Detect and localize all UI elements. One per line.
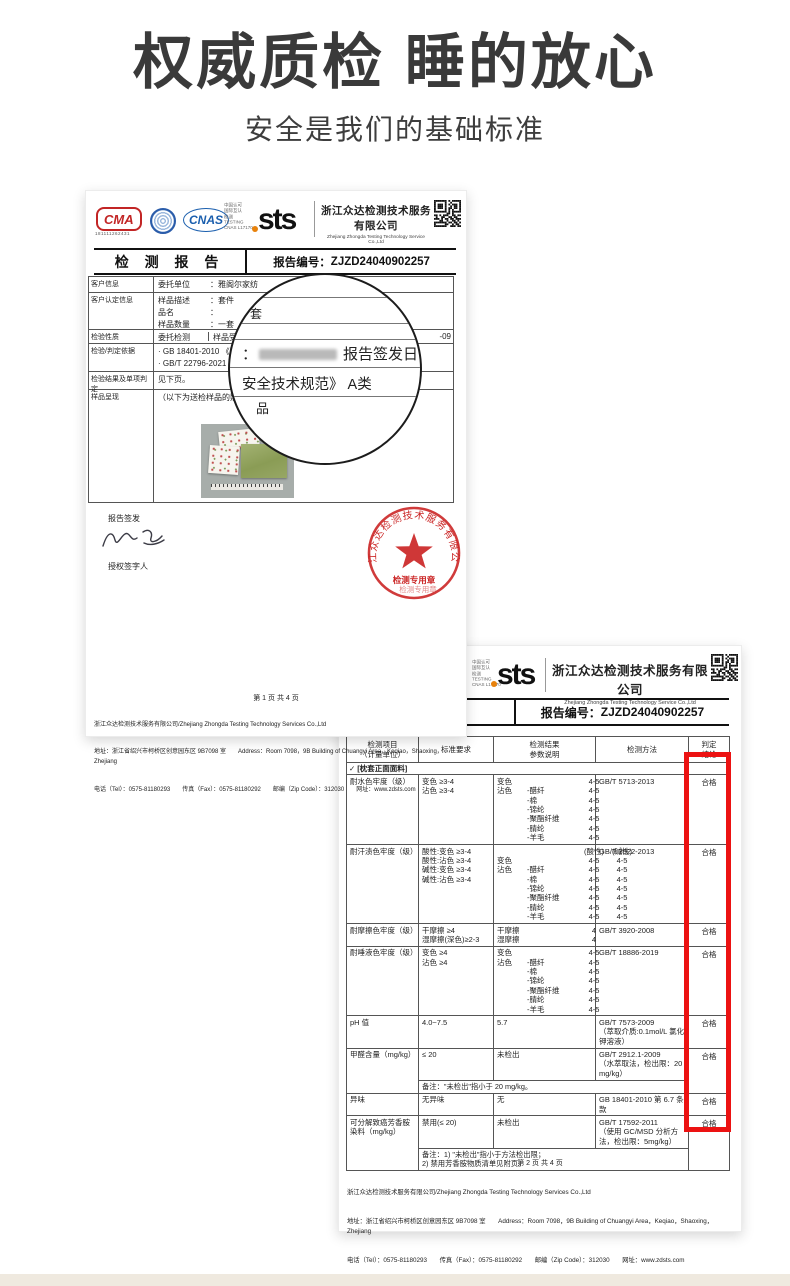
result-line: -锦纶4-54-5 <box>497 884 592 893</box>
result-fiber <box>527 935 579 944</box>
page-number: 第 2 页 共 4 页 <box>339 1158 741 1168</box>
result-line: 干摩擦4 <box>497 926 592 935</box>
blurred-date <box>259 349 337 360</box>
method-line: GB/T 3922-2013 <box>599 847 685 856</box>
result-fiber: -锦纶 <box>527 884 579 893</box>
report-page-1: CMA 181111262431 CNAS 中国认可 国际互认 检测 TESTI… <box>85 190 467 737</box>
result-value: 4-5 <box>579 967 609 976</box>
requirement-line: 碱性:沾色 ≥3-4 <box>422 875 490 884</box>
result-fiber: -羊毛 <box>527 912 579 921</box>
result-value: 4-5 <box>579 814 609 823</box>
result-line: 沾色-醋纤4-5 <box>497 786 592 795</box>
requirement-line: ≤ 20 <box>422 1050 490 1059</box>
item-cell: 耐摩擦色牢度（级） <box>347 924 419 947</box>
report-number-cell: 报告编号：ZJZD24040902257 <box>514 700 729 724</box>
result-line: -聚酯纤维4-5 <box>497 986 592 995</box>
requirement-cell: ≤ 20 <box>419 1048 494 1080</box>
requirement-line: 无异味 <box>422 1095 490 1104</box>
result-value: 4-5 <box>579 824 609 833</box>
method-line: GB/T 2912.1-2009 <box>599 1050 685 1059</box>
result-value: 4-5 <box>579 995 609 1004</box>
date-tail: -09 <box>439 332 451 341</box>
qr-code <box>711 654 738 681</box>
result-fiber: -腈纶 <box>527 995 579 1004</box>
info-row-label: 检验性质 <box>89 330 154 343</box>
report-title-bar: 检 测 报 告 报告编号：ZJZD24040902257 <box>94 248 456 275</box>
requirement-line: 变色 ≥4 <box>422 948 490 957</box>
result-value: 4-5 <box>579 893 609 902</box>
result-value: 4-5 <box>579 875 609 884</box>
company-name-cn: 浙江众达检测技术服务有限公司 <box>320 203 432 233</box>
result-value: 4-5 <box>579 856 609 865</box>
result-fiber: -棉 <box>527 967 579 976</box>
method-cell: GB 18401-2010 第 6.7 条款 <box>596 1093 689 1116</box>
company-name-block: 浙江众达检测技术服务有限公司 Zhejiang Zhongda Testing … <box>320 203 432 245</box>
result-value-2: 4-5 <box>609 893 635 902</box>
svg-text:检测专用章: 检测专用章 <box>399 584 437 594</box>
method-cell: GB/T 2912.1-2009（水萃取法，检出限：20mg/kg） <box>596 1048 689 1080</box>
result-fiber: -聚酯纤维 <box>527 986 579 995</box>
result-label: 变色 <box>497 856 527 865</box>
result-cell: 未检出 <box>494 1048 596 1080</box>
result-line: 湿摩擦4 <box>497 935 592 944</box>
method-line: GB 18401-2010 第 6.7 条款 <box>599 1095 685 1114</box>
requirement-line: 湿摩擦(深色)≥2-3 <box>422 935 490 944</box>
test-row: 可分解致癌芳香胺染料（mg/kg）禁用(≤ 20)未检出GB/T 17592-2… <box>347 1116 730 1148</box>
info-row-label: 检验/判定依据 <box>89 344 154 371</box>
requirement-cell: 无异味 <box>419 1093 494 1116</box>
page-title: 权威质检 睡的放心 <box>0 14 790 101</box>
result-fiber: -羊毛 <box>527 1005 579 1014</box>
qr-code <box>434 200 461 227</box>
result-label: 沾色 <box>497 865 527 874</box>
header-divider <box>545 658 546 692</box>
result-fiber: -醋纤 <box>527 786 579 795</box>
result-line: -腈纶4-5 <box>497 995 592 1004</box>
test-row: 耐汗渍色牢度（级）酸性:变色 ≥3-4酸性:沾色 ≥3-4碱性:变色 ≥3-4碱… <box>347 845 730 924</box>
sts-dot-icon <box>252 226 258 232</box>
result-label: 沾色 <box>497 786 527 795</box>
result-cell: 变色4-5沾色-醋纤4-5-棉4-5-锦纶4-5-聚酯纤维4-5-腈纶4-5-羊… <box>494 946 596 1016</box>
requirement-line: 沾色 ≥4 <box>422 958 490 967</box>
svg-text:检测专用章: 检测专用章 <box>393 575 436 585</box>
result-line: -羊毛4-54-5 <box>497 912 592 921</box>
column-header: 检测方法 <box>596 737 689 763</box>
requirement-line: 酸性:变色 ≥3-4 <box>422 847 490 856</box>
result-label: 变色 <box>497 948 527 957</box>
result-fiber <box>527 856 579 865</box>
info-value: ： <box>210 307 218 319</box>
table-rule <box>230 323 420 324</box>
test-row: 异味无异味无GB 18401-2010 第 6.7 条款合格 <box>347 1093 730 1116</box>
doc-title-cell: 检 测 报 告 <box>94 250 245 273</box>
requirement-cell: 禁用(≤ 20) <box>419 1116 494 1148</box>
result-value: 4-5 <box>579 1005 609 1014</box>
result-label <box>497 814 527 823</box>
report-footer: 浙江众达检测技术服务有限公司/Zhejiang Zhongda Testing … <box>94 702 458 814</box>
result-fiber: -醋纤 <box>527 865 579 874</box>
verdict-highlight-box <box>684 752 731 1132</box>
result-cell: 未检出 <box>494 1116 596 1148</box>
cma-logo: CMA <box>96 207 142 231</box>
result-line: -锦纶4-5 <box>497 976 592 985</box>
item-cell: 耐汗渍色牢度（级） <box>347 845 419 924</box>
requirement-cell: 变色 ≥4沾色 ≥4 <box>419 946 494 1016</box>
result-value: 4 <box>579 935 609 944</box>
info-row-label: 客户信息 <box>89 277 154 292</box>
result-value-2: 4-5 <box>609 903 635 912</box>
cma-number: 181111262431 <box>95 231 130 236</box>
result-value: 4-5 <box>579 958 609 967</box>
report-no-label: 报告编号： <box>541 704 601 721</box>
magnifier-circle: 件 套 ：报告签发日 安全技术规范》 A类 品 <box>228 273 422 465</box>
result-value: 4-5 <box>579 805 609 814</box>
result-cell: 变色4-5沾色-醋纤4-5-棉4-5-锦纶4-5-聚酯纤维4-5-腈纶4-5-羊… <box>494 775 596 845</box>
result-fiber <box>527 948 579 957</box>
sts-logo: sts <box>258 205 295 235</box>
table-rule <box>230 396 420 397</box>
result-fiber: -醋纤 <box>527 958 579 967</box>
table-rule <box>230 339 420 340</box>
result-line: 变色4-54-5 <box>497 856 592 865</box>
result-value: 4-5 <box>579 884 609 893</box>
report-no-label: 报告编号： <box>273 254 331 270</box>
info-key: 样品描述 <box>158 295 210 307</box>
note-cell: 备注："未检出"指小于 20 mg/kg。 <box>419 1080 689 1093</box>
table-rule <box>230 367 420 368</box>
result-fiber: -锦纶 <box>527 976 579 985</box>
result-label <box>497 912 527 921</box>
magnified-char: 件 <box>250 281 262 298</box>
method-cell: GB/T 18886-2019 <box>596 946 689 1016</box>
result-value-2: 4-5 <box>609 912 635 921</box>
result-value: 4-5 <box>579 976 609 985</box>
requirement-line: 4.0~7.5 <box>422 1018 490 1027</box>
result-line: -羊毛4-5 <box>497 1005 592 1014</box>
item-cell: 甲醛含量（mg/kg） <box>347 1048 419 1093</box>
method-line: （萃取介质:0.1mol/L 氯化钾溶液） <box>599 1027 685 1046</box>
sts-dot-icon <box>491 681 497 687</box>
result-label <box>497 995 527 1004</box>
result-line: -腈纶4-54-5 <box>497 903 592 912</box>
page-subtitle: 安全是我们的基础标准 <box>0 108 790 148</box>
result-label <box>497 967 527 976</box>
result-fiber: -聚酯纤维 <box>527 814 579 823</box>
result-line: 未检出 <box>497 1118 592 1127</box>
fabric-swatch <box>208 445 240 475</box>
sts-logo: sts <box>497 660 534 690</box>
result-fiber <box>527 926 579 935</box>
signer-label: 授权签字人 <box>108 561 148 572</box>
result-value-2: 4-5 <box>609 875 635 884</box>
method-cell: GB/T 17592-2011（使用 GC/MSD 分析方法，检出限：5mg/k… <box>596 1116 689 1148</box>
result-label: 沾色 <box>497 958 527 967</box>
header-divider <box>314 201 315 237</box>
cell: 委托检测 <box>158 332 208 341</box>
method-cell: GB/T 3920-2008 <box>596 924 689 947</box>
result-line: -腈纶4-5 <box>497 824 592 833</box>
result-value: 4-5 <box>579 903 609 912</box>
result-value: 4-5 <box>579 986 609 995</box>
method-line: GB/T 7573-2009 <box>599 1018 685 1027</box>
requirement-line: 酸性:沾色 ≥3-4 <box>422 856 490 865</box>
result-line: -聚酯纤维4-5 <box>497 814 592 823</box>
result-value: 4-5 <box>579 833 609 842</box>
method-line: （使用 GC/MSD 分析方法，检出限：5mg/kg） <box>599 1127 685 1146</box>
inspection-stamp: 浙江众达检测技术服务有限公司 检测专用章 检测专用章 <box>364 503 464 603</box>
requirement-line: 干摩擦 ≥4 <box>422 926 490 935</box>
result-value: 4-5 <box>579 786 609 795</box>
result-label <box>497 796 527 805</box>
info-row-label: 检验结果及单项判定 <box>89 372 154 389</box>
result-label <box>497 986 527 995</box>
result-fiber: -聚酯纤维 <box>527 893 579 902</box>
result-label: 变色 <box>497 777 527 786</box>
test-row: pH 值4.0~7.55.7GB/T 7573-2009（萃取介质:0.1mol… <box>347 1016 730 1048</box>
result-cell: (酸性)(碱性)变色4-54-5沾色-醋纤4-54-5-棉4-54-5-锦纶4-… <box>494 845 596 924</box>
result-label <box>497 833 527 842</box>
result-value-2: 4-5 <box>609 865 635 874</box>
result-fiber <box>527 847 579 856</box>
footer-address: 地址：浙江省绍兴市柯桥区创意园东区 9B7098 室 Address：Room … <box>347 1217 733 1237</box>
result-line: 沾色-醋纤4-5 <box>497 958 592 967</box>
ruler <box>211 484 283 490</box>
column-header: 检测结果参数说明 <box>494 737 596 763</box>
result-value-2: 4-5 <box>609 856 635 865</box>
info-key: 委托单位 <box>158 279 210 291</box>
result-label <box>497 847 527 856</box>
result-line: 沾色-醋纤4-54-5 <box>497 865 592 874</box>
promo-canvas: 权威质检 睡的放心 安全是我们的基础标准 S 中国认可 国际互认 检测 TEST… <box>0 0 790 1286</box>
result-label: 湿摩擦 <box>497 935 527 944</box>
company-name-en: Zhejiang Zhongda Testing Technology Serv… <box>320 235 432 245</box>
result-label <box>497 903 527 912</box>
footer-contact: 电话（Tel）：0575-81180293 传真（Fax）：0575-81180… <box>94 786 458 795</box>
result-label <box>497 1005 527 1014</box>
result-value: 4-5 <box>579 796 609 805</box>
result-value: 4-5 <box>579 912 609 921</box>
result-line: -棉4-54-5 <box>497 875 592 884</box>
method-cell: GB/T 5713-2013 <box>596 775 689 845</box>
method-line: GB/T 17592-2011 <box>599 1118 685 1127</box>
footer-company: 浙江众达检测技术服务有限公司/Zhejiang Zhongda Testing … <box>347 1188 733 1198</box>
cnas-logo: CNAS <box>183 208 229 232</box>
result-line: -锦纶4-5 <box>497 805 592 814</box>
result-line: (酸性)(碱性) <box>497 847 592 856</box>
requirement-cell: 干摩擦 ≥4湿摩擦(深色)≥2-3 <box>419 924 494 947</box>
requirement-line: 碱性:变色 ≥3-4 <box>422 865 490 874</box>
requirement-cell: 4.0~7.5 <box>419 1016 494 1048</box>
method-line: GB/T 3920-2008 <box>599 926 685 935</box>
result-value: 4-5 <box>579 865 609 874</box>
result-line: -羊毛4-5 <box>497 833 592 842</box>
requirement-line: 禁用(≤ 20) <box>422 1118 490 1127</box>
result-value-2: 4-5 <box>609 884 635 893</box>
result-fiber: -腈纶 <box>527 824 579 833</box>
item-cell: 耐唾液色牢度（级） <box>347 946 419 1016</box>
result-label <box>497 824 527 833</box>
result-fiber: -锦纶 <box>527 805 579 814</box>
ilac-mra-logo <box>150 208 176 234</box>
result-label <box>497 893 527 902</box>
result-cell: 5.7 <box>494 1016 596 1048</box>
result-cell: 干摩擦4湿摩擦4 <box>494 924 596 947</box>
result-fiber: -棉 <box>527 875 579 884</box>
item-cell: 异味 <box>347 1093 419 1116</box>
result-line: 变色4-5 <box>497 777 592 786</box>
result-line: 5.7 <box>497 1018 592 1027</box>
result-label <box>497 875 527 884</box>
info-row-label: 样品呈现 <box>89 390 154 502</box>
result-line: 无 <box>497 1095 592 1104</box>
report-number-cell: 报告编号：ZJZD24040902257 <box>245 250 456 273</box>
magnified-spec-line: 安全技术规范》 A类 <box>242 373 372 394</box>
report-no-value: ZJZD24040902257 <box>331 256 430 268</box>
method-line: GB/T 5713-2013 <box>599 777 685 786</box>
result-label <box>497 805 527 814</box>
cnas-accreditation-text: 中国认可 国际互认 检测 TESTING CNAS L17170 <box>224 203 253 231</box>
method-cell: GB/T 7573-2009（萃取介质:0.1mol/L 氯化钾溶液） <box>596 1016 689 1048</box>
result-label <box>497 884 527 893</box>
result-line: 变色4-5 <box>497 948 592 957</box>
result-line: -棉4-5 <box>497 967 592 976</box>
result-line: -棉4-5 <box>497 796 592 805</box>
result-label: 干摩擦 <box>497 926 527 935</box>
info-key: 见下页。 <box>158 374 190 386</box>
report-footer: 浙江众达检测技术服务有限公司/Zhejiang Zhongda Testing … <box>347 1168 733 1285</box>
footer-contact: 电话（Tel）：0575-81180293 传真（Fax）：0575-81180… <box>347 1256 733 1266</box>
info-key: 品名 <box>158 307 210 319</box>
test-row: 耐摩擦色牢度（级）干摩擦 ≥4湿摩擦(深色)≥2-3干摩擦4湿摩擦4GB/T 3… <box>347 924 730 947</box>
test-row: 耐唾液色牢度（级）变色 ≥4沾色 ≥4变色4-5沾色-醋纤4-5-棉4-5-锦纶… <box>347 946 730 1016</box>
result-fiber: -羊毛 <box>527 833 579 842</box>
result-fiber: -棉 <box>527 796 579 805</box>
result-fiber <box>527 777 579 786</box>
result-cell: 无 <box>494 1093 596 1116</box>
result-line: -聚酯纤维4-54-5 <box>497 893 592 902</box>
method-line: GB/T 18886-2019 <box>599 948 685 957</box>
requirement-cell: 酸性:变色 ≥3-4酸性:沾色 ≥3-4碱性:变色 ≥3-4碱性:沾色 ≥3-4 <box>419 845 494 924</box>
magnified-issue-date-line: ：报告签发日 <box>242 343 418 364</box>
info-row-label: 客户认定信息 <box>89 293 154 329</box>
method-line: （水萃取法，检出限：20mg/kg） <box>599 1059 685 1078</box>
signature <box>98 523 170 555</box>
item-cell: pH 值 <box>347 1016 419 1048</box>
result-fiber: -腈纶 <box>527 903 579 912</box>
magnified-char: 品 <box>256 398 269 417</box>
result-label <box>497 976 527 985</box>
test-row: 甲醛含量（mg/kg）≤ 20未检出GB/T 2912.1-2009（水萃取法，… <box>347 1048 730 1080</box>
result-line: 未检出 <box>497 1050 592 1059</box>
company-name-cn: 浙江众达检测技术服务有限公司 <box>551 660 709 698</box>
footer-company: 浙江众达检测技术服务有限公司/Zhejiang Zhongda Testing … <box>94 721 458 730</box>
report-no-value: ZJZD24040902257 <box>601 705 704 719</box>
note-line: 备注："未检出"指小于 20 mg/kg。 <box>422 1082 685 1091</box>
magnified-char: 套 <box>250 305 262 322</box>
footer-address: 地址：浙江省绍兴市柯桥区创意园东区 9B7098 室 Address：Room … <box>94 748 458 767</box>
